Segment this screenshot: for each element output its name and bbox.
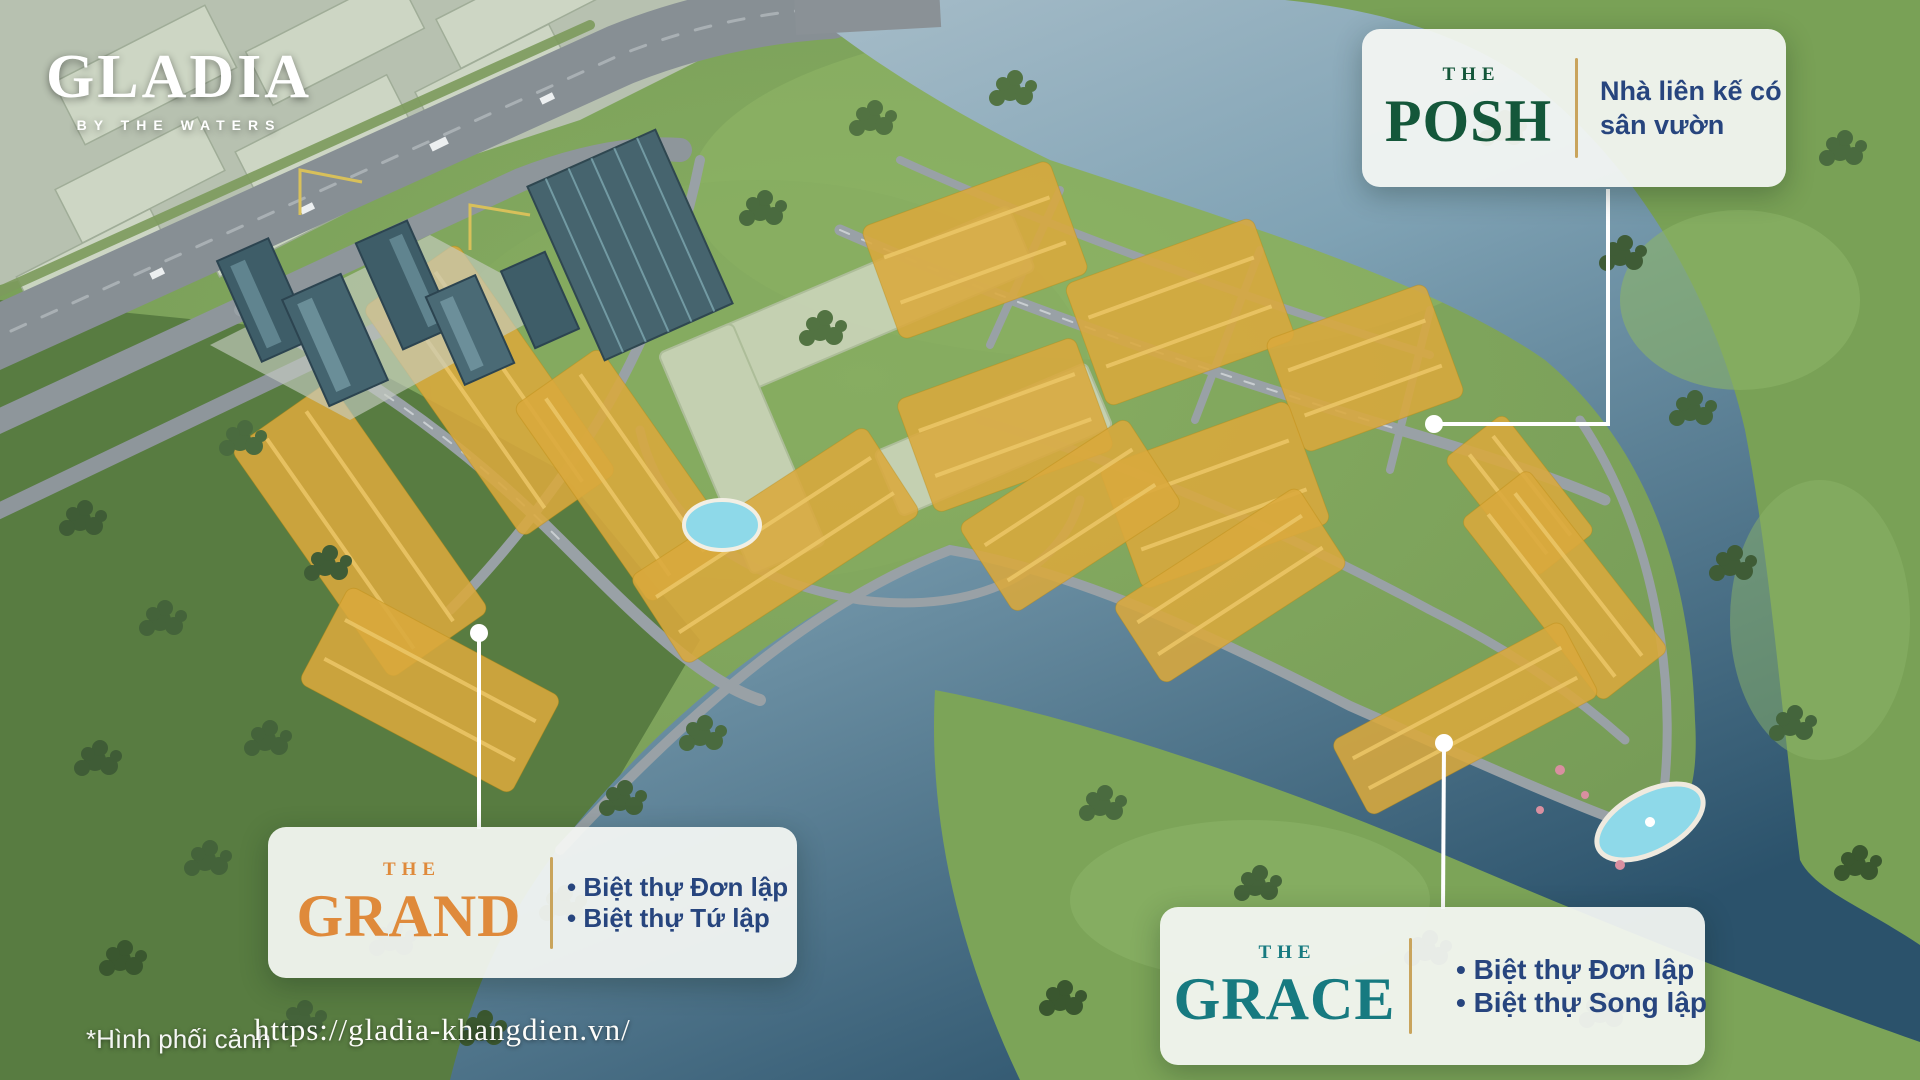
zone-kicker: THE (1160, 943, 1409, 962)
brand-tagline: BY THE WATERS (46, 117, 312, 133)
render-disclaimer: *Hình phối cảnh (86, 1024, 271, 1055)
zone-name-block: THE GRAND (268, 860, 550, 946)
zone-name: POSH (1362, 91, 1575, 151)
website-watermark: https://gladia-khangdien.vn/ (254, 1012, 631, 1048)
zone-description: • Biệt thự Đơn lập • Biệt thự Song lập (1412, 953, 1707, 1019)
zone-description-line: • Biệt thự Tứ lập (567, 903, 788, 934)
zone-description: • Biệt thự Đơn lập • Biệt thự Tứ lập (553, 872, 788, 934)
zone-description-line: • Biệt thự Đơn lập (567, 872, 788, 903)
zone-name-block: THE GRACE (1160, 943, 1409, 1029)
brand-logo: GLADIA BY THE WATERS (46, 46, 312, 133)
masterplan-render: GLADIA BY THE WATERS THE POSH Nhà liên k… (0, 0, 1920, 1080)
callout-card-grace: THE GRACE • Biệt thự Đơn lập • Biệt thự … (1160, 907, 1705, 1065)
zone-kicker: THE (268, 860, 550, 879)
zone-name-block: THE POSH (1362, 65, 1575, 151)
zone-description-line: • Biệt thự Đơn lập (1456, 953, 1707, 986)
zone-description-line: sân vườn (1600, 108, 1782, 142)
zone-kicker: THE (1362, 65, 1575, 84)
zone-description: Nhà liên kế có sân vườn (1578, 74, 1782, 142)
zone-name: GRAND (268, 886, 550, 946)
bridge (795, 6, 940, 14)
zone-name: GRACE (1160, 969, 1409, 1029)
callout-card-grand: THE GRAND • Biệt thự Đơn lập • Biệt thự … (268, 827, 797, 978)
callout-card-posh: THE POSH Nhà liên kế có sân vườn (1362, 29, 1786, 187)
brand-title: GLADIA (46, 46, 312, 108)
zone-description-line: Nhà liên kế có (1600, 74, 1782, 108)
zone-description-line: • Biệt thự Song lập (1456, 986, 1707, 1019)
club-lagoon-pond (684, 500, 760, 550)
